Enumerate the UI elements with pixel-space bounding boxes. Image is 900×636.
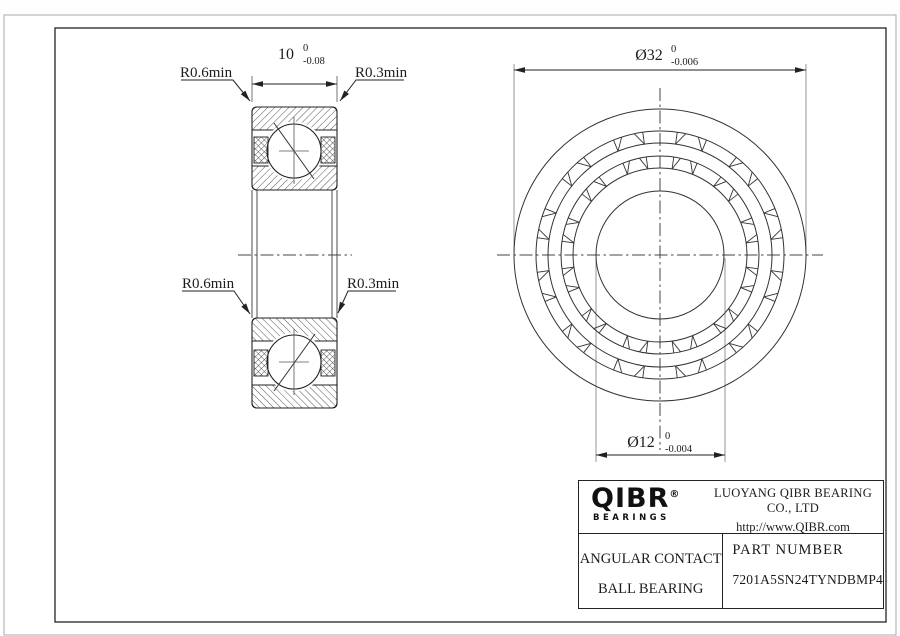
logo-text: QIBR — [591, 483, 669, 514]
part-number-value: 7201A5SN24TYNDBMP4 — [732, 572, 883, 588]
bearing-drawing-page: 10 0 -0.08 R0.6min R0.3min R0.6min R0.3m… — [0, 0, 900, 636]
bore-tol-upper: 0 — [665, 431, 670, 442]
bore-value: Ø12 — [627, 434, 655, 451]
top-half-section — [252, 107, 337, 190]
width-tol-lower: -0.08 — [303, 56, 325, 67]
od-value: Ø32 — [635, 47, 663, 64]
bottom-half-section — [252, 318, 337, 408]
fillet-label-inner-top: R0.3min — [355, 65, 408, 81]
fillet-label-outer-top: R0.6min — [180, 65, 233, 81]
company-info: LUOYANG QIBR BEARING CO., LTD http://www… — [703, 481, 883, 533]
fillet-label-outer-bottom: R0.6min — [182, 276, 235, 292]
title-block: QIBR® BEARINGS LUOYANG QIBR BEARING CO.,… — [578, 480, 884, 609]
cage-section-right — [321, 350, 335, 376]
od-tol-upper: 0 — [671, 44, 676, 55]
bore-tol-lower: -0.004 — [665, 444, 693, 455]
product-title: ANGULAR CONTACT BALL BEARING — [579, 534, 722, 608]
company-name: LUOYANG QIBR BEARING CO., LTD — [703, 486, 883, 516]
od-tol-lower: -0.006 — [671, 57, 698, 68]
logo-tagline: BEARINGS — [593, 513, 703, 523]
cage-section-left — [254, 350, 268, 376]
title-block-header-row: QIBR® BEARINGS LUOYANG QIBR BEARING CO.,… — [579, 481, 883, 534]
cage-section-left — [254, 137, 268, 163]
fillet-label-inner-bottom: R0.3min — [347, 276, 400, 292]
product-line1: ANGULAR CONTACT — [579, 544, 722, 574]
company-logo: QIBR® BEARINGS — [579, 481, 703, 533]
width-tol-upper: 0 — [303, 43, 308, 54]
logo-wordmark: QIBR® — [591, 485, 703, 512]
company-website: http://www.QIBR.com — [703, 520, 883, 535]
product-line2: BALL BEARING — [579, 574, 722, 604]
part-number-cell: PART NUMBER 7201A5SN24TYNDBMP4 — [722, 534, 883, 608]
registered-mark: ® — [669, 489, 680, 500]
width-value: 10 — [278, 46, 294, 63]
part-number-label: PART NUMBER — [732, 542, 883, 559]
title-block-detail-row: ANGULAR CONTACT BALL BEARING PART NUMBER… — [579, 534, 883, 608]
cage-section-right — [321, 137, 335, 163]
